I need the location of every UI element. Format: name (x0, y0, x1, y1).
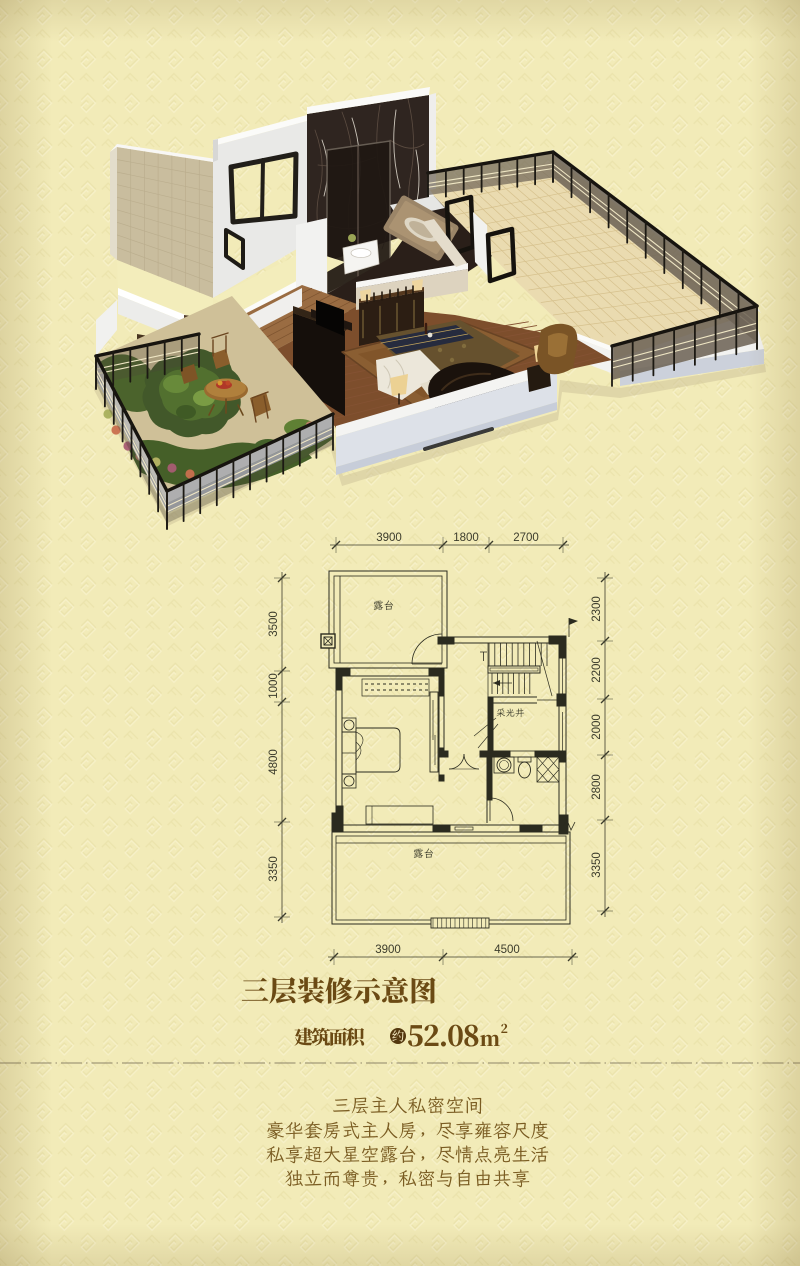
svg-text:3350: 3350 (591, 852, 603, 878)
svg-text:4500: 4500 (494, 944, 520, 956)
svg-text:3900: 3900 (376, 532, 402, 544)
svg-text:3900: 3900 (375, 944, 401, 956)
svg-text:1000: 1000 (268, 673, 280, 699)
svg-text:2700: 2700 (513, 532, 539, 544)
svg-text:1800: 1800 (453, 532, 479, 544)
svg-text:2300: 2300 (591, 596, 603, 622)
svg-text:3350: 3350 (268, 856, 280, 882)
svg-text:2200: 2200 (591, 657, 603, 683)
svg-text:2800: 2800 (591, 774, 603, 800)
svg-text:4800: 4800 (268, 749, 280, 775)
svg-text:3500: 3500 (268, 611, 280, 637)
svg-text:2000: 2000 (591, 714, 603, 740)
